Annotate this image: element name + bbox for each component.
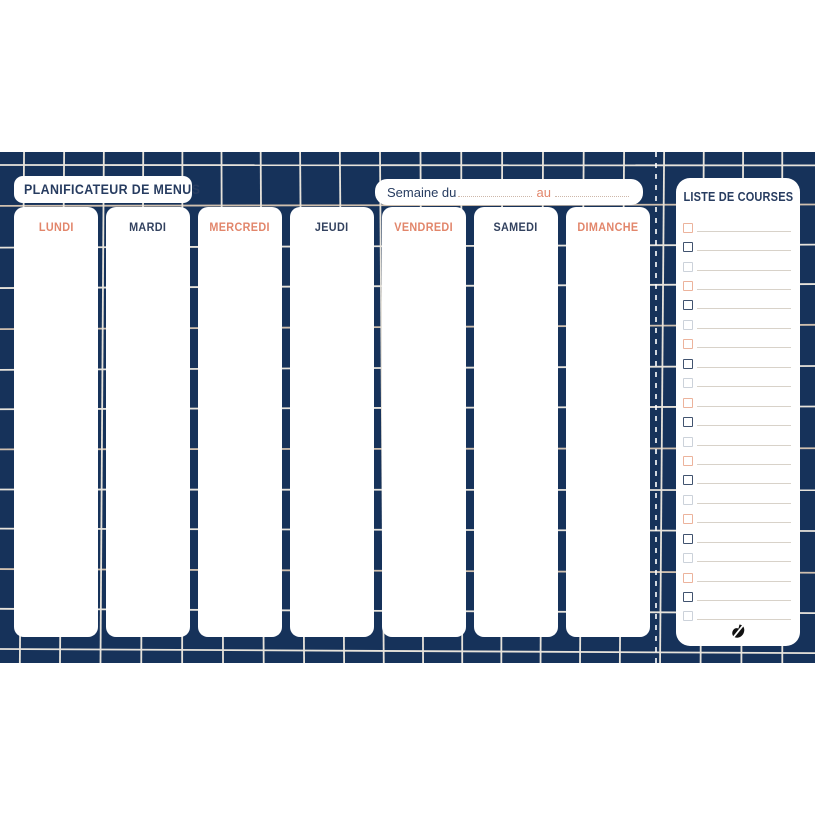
item-write-line[interactable] [697,581,791,582]
checkbox-icon[interactable] [683,242,693,252]
shopping-list-item [676,315,800,334]
shopping-list-rows [676,218,800,626]
checkbox-icon[interactable] [683,611,693,621]
shopping-list-item [676,237,800,256]
day-column-vendredi[interactable]: VENDREDI [382,207,466,637]
shopping-list-item [676,451,800,470]
checkbox-icon[interactable] [683,223,693,233]
day-label: VENDREDI [395,220,454,637]
checkbox-icon[interactable] [683,475,693,485]
shopping-list-item [676,412,800,431]
item-write-line[interactable] [697,542,791,543]
shopping-list-item [676,335,800,354]
checkbox-icon[interactable] [683,262,693,272]
item-write-line[interactable] [697,522,791,523]
item-write-line[interactable] [697,308,791,309]
item-write-line[interactable] [697,270,791,271]
checkbox-icon[interactable] [683,573,693,583]
checkbox-icon[interactable] [683,495,693,505]
item-write-line[interactable] [697,231,791,232]
day-label: SAMEDI [494,220,538,637]
item-write-line[interactable] [697,386,791,387]
week-field-box: Semaine du au [375,179,643,205]
shopping-list-panel: LISTE DE COURSES [676,178,800,646]
shopping-list-item [676,587,800,606]
day-column-lundi[interactable]: LUNDI [14,207,98,637]
checkbox-icon[interactable] [683,417,693,427]
item-write-line[interactable] [697,445,791,446]
shopping-list-item [676,393,800,412]
item-write-line[interactable] [697,503,791,504]
item-write-line[interactable] [697,425,791,426]
week-start-field[interactable] [458,196,532,197]
day-label: DIMANCHE [577,220,638,637]
shopping-list-item [676,548,800,567]
item-write-line[interactable] [697,483,791,484]
planner-title-box: PLANIFICATEUR DE MENUS [14,176,192,203]
week-field-label: Semaine du [387,185,456,200]
shopping-list-item [676,296,800,315]
day-column-dimanche[interactable]: DIMANCHE [566,207,650,637]
checkbox-icon[interactable] [683,437,693,447]
day-label: JEUDI [315,220,349,637]
checkbox-icon[interactable] [683,378,693,388]
tear-off-dashed-line [655,152,657,663]
item-write-line[interactable] [697,406,791,407]
checkbox-icon[interactable] [683,514,693,524]
shopping-list-item [676,432,800,451]
item-write-line[interactable] [697,464,791,465]
day-column-mardi[interactable]: MARDI [106,207,190,637]
shopping-list-item [676,568,800,587]
checkbox-icon[interactable] [683,320,693,330]
planner-title: PLANIFICATEUR DE MENUS [24,182,200,197]
day-label: LUNDI [39,220,74,637]
week-field-separator: au [534,185,552,200]
item-write-line[interactable] [697,367,791,368]
week-end-field[interactable] [555,196,629,197]
menu-planner-sheet: PLANIFICATEUR DE MENUS Semaine du au LUN… [0,152,815,663]
item-write-line[interactable] [697,347,791,348]
shopping-list-item [676,471,800,490]
shopping-list-item [676,354,800,373]
shopping-list-item [676,257,800,276]
shopping-list-item [676,276,800,295]
day-label: MERCREDI [210,220,270,637]
checkbox-icon[interactable] [683,553,693,563]
item-write-line[interactable] [697,619,791,620]
shopping-list-item [676,529,800,548]
shopping-list-item [676,374,800,393]
checkbox-icon[interactable] [683,281,693,291]
shopping-list-item [676,218,800,237]
day-column-jeudi[interactable]: JEUDI [290,207,374,637]
day-label: MARDI [129,220,166,637]
shopping-list-item [676,510,800,529]
checkbox-icon[interactable] [683,300,693,310]
item-write-line[interactable] [697,561,791,562]
item-write-line[interactable] [697,328,791,329]
checkbox-icon[interactable] [683,339,693,349]
day-column-mercredi[interactable]: MERCREDI [198,207,282,637]
checkbox-icon[interactable] [683,398,693,408]
checkbox-icon[interactable] [683,359,693,369]
item-write-line[interactable] [697,600,791,601]
day-column-samedi[interactable]: SAMEDI [474,207,558,637]
checkbox-icon[interactable] [683,534,693,544]
checkbox-icon[interactable] [683,456,693,466]
brand-swoosh-icon [676,623,800,640]
checkbox-icon[interactable] [683,592,693,602]
shopping-list-title: LISTE DE COURSES [683,190,792,204]
item-write-line[interactable] [697,250,791,251]
shopping-list-item [676,490,800,509]
item-write-line[interactable] [697,289,791,290]
